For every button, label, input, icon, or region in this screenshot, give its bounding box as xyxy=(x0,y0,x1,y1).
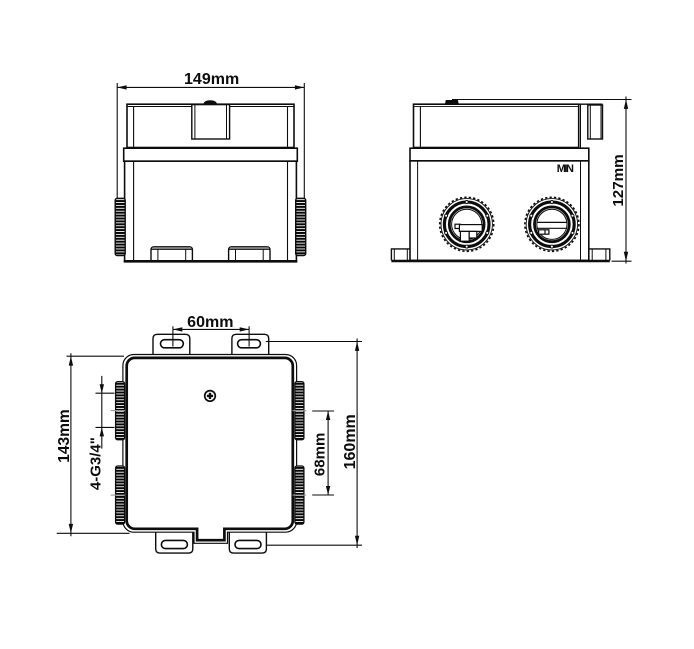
svg-text:149mm: 149mm xyxy=(184,71,239,88)
svg-text:4-G3/4": 4-G3/4" xyxy=(87,437,104,490)
svg-text:60mm: 60mm xyxy=(187,314,233,331)
svg-text:160mm: 160mm xyxy=(342,414,359,469)
svg-text:127mm: 127mm xyxy=(610,154,627,206)
svg-text:143mm: 143mm xyxy=(56,409,73,462)
svg-text:MIN: MIN xyxy=(557,163,574,175)
svg-text:68mm: 68mm xyxy=(312,433,329,476)
